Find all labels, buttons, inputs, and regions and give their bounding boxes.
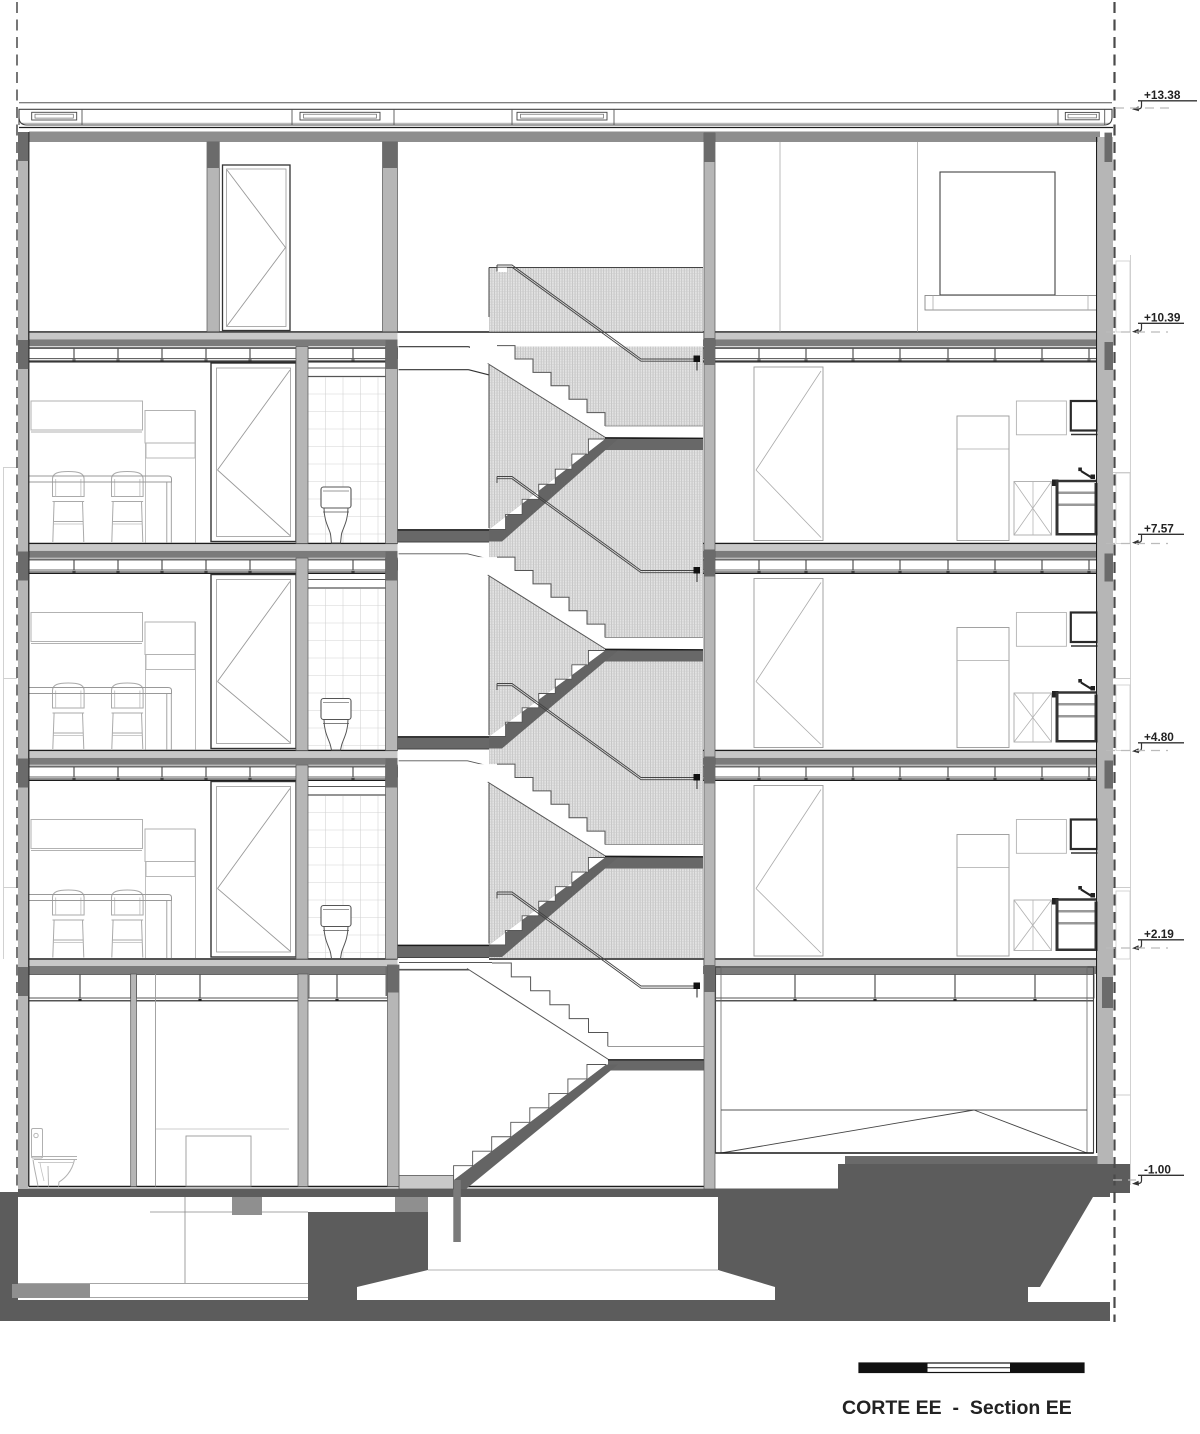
svg-text:+13.38: +13.38: [1144, 88, 1181, 102]
svg-text:+2.19: +2.19: [1144, 927, 1174, 941]
svg-text:+10.39: +10.39: [1144, 311, 1181, 325]
svg-text:+7.57: +7.57: [1144, 522, 1174, 536]
svg-text:-1.00: -1.00: [1144, 1163, 1171, 1177]
svg-text:CORTE EE - Section EE: CORTE EE - Section EE: [842, 1397, 1072, 1419]
svg-text:+4.80: +4.80: [1144, 730, 1174, 744]
